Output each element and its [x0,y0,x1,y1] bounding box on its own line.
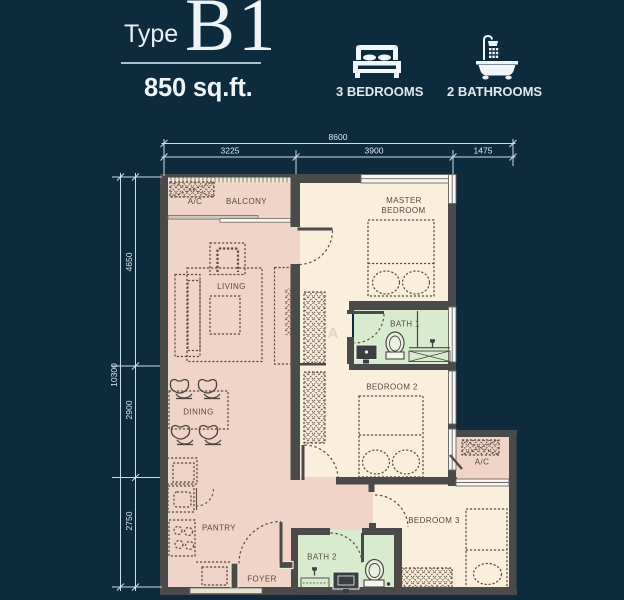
svg-text:MASTER: MASTER [386,196,422,205]
svg-text:A/C: A/C [475,458,490,467]
svg-text:1475: 1475 [474,146,493,156]
svg-text:BEDROOM: BEDROOM [381,206,425,215]
svg-text:LIVING: LIVING [217,282,246,291]
svg-text:A: A [328,325,339,342]
svg-text:FOYER: FOYER [247,575,277,584]
svg-text:2750: 2750 [124,511,134,530]
svg-text:BALCONY: BALCONY [226,197,267,206]
svg-text:3225: 3225 [221,146,240,156]
svg-text:2900: 2900 [124,400,134,419]
svg-text:4650: 4650 [124,252,134,271]
svg-text:8600: 8600 [329,132,348,142]
svg-text:10300: 10300 [109,363,119,387]
svg-text:PANTRY: PANTRY [202,524,236,533]
svg-text:3900: 3900 [365,146,384,156]
svg-text:BEDROOM 3: BEDROOM 3 [408,516,460,525]
svg-text:A/C: A/C [188,197,203,206]
svg-text:BEDROOM 2: BEDROOM 2 [366,383,418,392]
svg-text:BATH 1: BATH 1 [390,320,420,329]
svg-text:DINING: DINING [183,408,213,417]
svg-text:BATH 2: BATH 2 [307,553,337,562]
